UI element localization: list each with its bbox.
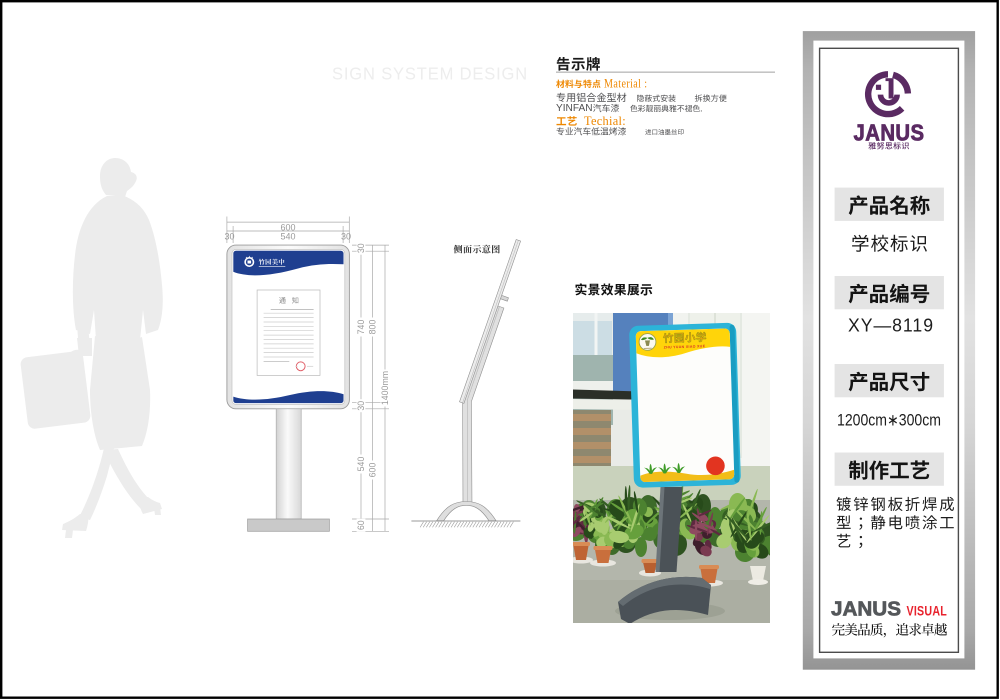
svg-text:800: 800 <box>368 320 378 335</box>
svg-text:30: 30 <box>356 243 366 253</box>
svg-text:JANUS: JANUS <box>831 597 901 620</box>
svg-text:SIGN SYSTEM DESIGN: SIGN SYSTEM DESIGN <box>332 64 528 84</box>
svg-text:60: 60 <box>356 520 366 530</box>
svg-text:Techial:: Techial: <box>584 114 626 128</box>
svg-text:JANUS: JANUS <box>854 120 925 146</box>
svg-text:540: 540 <box>356 457 366 472</box>
svg-text:1400mm: 1400mm <box>380 371 390 405</box>
svg-text:30: 30 <box>224 232 234 242</box>
svg-text:YINFAN: YINFAN <box>556 103 593 114</box>
svg-text:600: 600 <box>368 463 378 478</box>
svg-text:1200cm∗300cm: 1200cm∗300cm <box>837 412 941 430</box>
svg-text:Material :: Material : <box>604 77 648 91</box>
svg-text:30: 30 <box>356 401 366 411</box>
svg-text:30: 30 <box>341 232 351 242</box>
svg-text:540: 540 <box>280 232 295 242</box>
svg-text:VISUAL: VISUAL <box>907 603 948 618</box>
svg-text:XY—8119: XY—8119 <box>848 316 934 336</box>
svg-text:740: 740 <box>356 320 366 335</box>
